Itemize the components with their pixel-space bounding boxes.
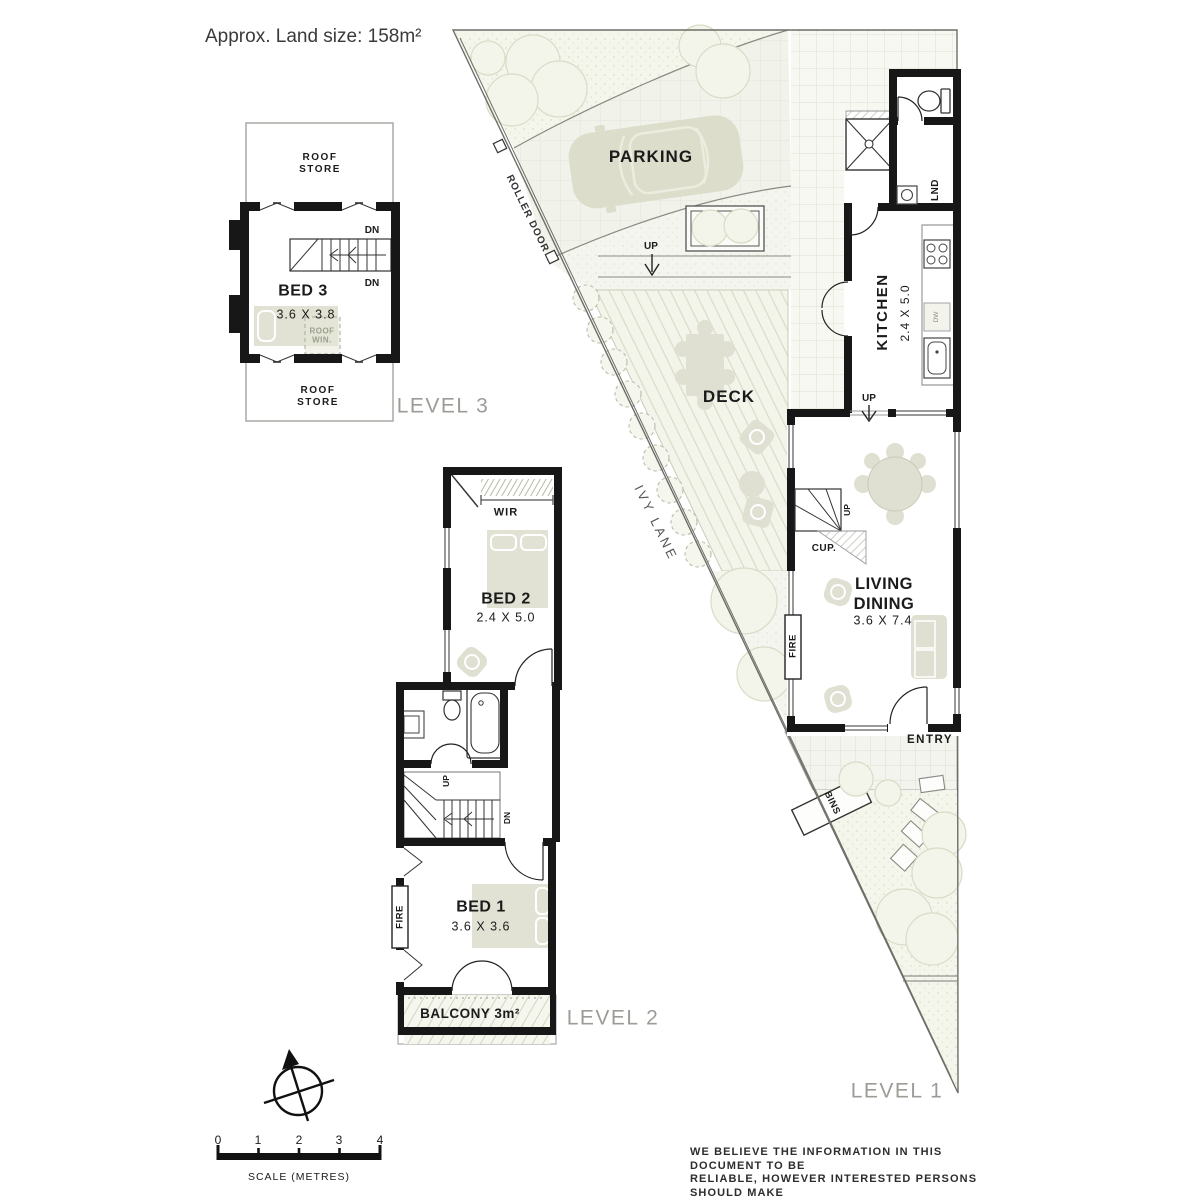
disclaimer-line: WE BELIEVE THE INFORMATION IN THIS DOCUM… — [690, 1146, 990, 1173]
wir-label: WIR — [494, 507, 518, 520]
planter — [686, 206, 764, 251]
bed2-label: BED 2 — [481, 591, 531, 610]
stove-icon — [924, 240, 950, 268]
bed1-dim: 3.6 X 3.6 — [451, 920, 510, 935]
compass-icon — [264, 1049, 334, 1121]
roller-door-post — [493, 139, 506, 152]
fire-label-l1: FIRE — [787, 634, 798, 658]
entry-label: ENTRY — [907, 734, 953, 748]
level3-stairs — [290, 239, 391, 271]
bed2-dim: 2.4 X 5.0 — [476, 611, 535, 626]
up-label-parking: UP — [644, 241, 658, 253]
kitchen-dim: 2.4 X 5.0 — [898, 284, 912, 341]
stair-bulkhead — [846, 111, 893, 170]
dn-lower-label: DN — [365, 278, 379, 290]
scale-tick-2: 2 — [296, 1133, 303, 1147]
bed3-dim: 3.6 X 3.8 — [276, 308, 335, 323]
roof-store-bottom-label: ROOF STORE — [297, 385, 339, 409]
sofa-icon — [911, 615, 947, 679]
bed1-label: BED 1 — [456, 899, 506, 918]
balcony-label: BALCONY 3m² — [420, 1006, 520, 1022]
kitchen-counter — [922, 225, 953, 385]
up-label-stairs: UP — [842, 504, 852, 516]
living-dining-dim: 3.6 X 7.4 — [853, 614, 912, 629]
kitchen-label: KITCHEN — [874, 273, 892, 350]
level2-title: LEVEL 2 — [567, 1007, 660, 1032]
dn-upper-label: DN — [365, 225, 379, 237]
disclaimer-line: RELIABLE, HOWEVER INTERESTED PERSONS SHO… — [690, 1173, 990, 1200]
bath-icon — [467, 688, 503, 758]
level2-plan — [392, 467, 562, 1044]
scale-tick-1: 1 — [255, 1133, 262, 1147]
scale-tick-0: 0 — [215, 1133, 222, 1147]
dishwasher-label: DW — [933, 312, 941, 323]
roof-win-label: ROOF WIN. — [309, 327, 334, 346]
bed3-label: BED 3 — [278, 283, 328, 302]
level3-title: LEVEL 3 — [397, 395, 490, 420]
floorplan-page: Approx. Land size: 158m² ROOF STORE ROOF… — [0, 0, 1200, 1200]
scale-tick-4: 4 — [377, 1133, 384, 1147]
scale-caption: SCALE (METRES) — [248, 1171, 350, 1183]
disclaimer: WE BELIEVE THE INFORMATION IN THIS DOCUM… — [690, 1146, 990, 1200]
land-size-title: Approx. Land size: 158m² — [205, 26, 422, 48]
roof-store-top-label: ROOF STORE — [299, 152, 341, 176]
up-label-l2: UP — [441, 775, 451, 787]
scale-bar — [217, 1145, 382, 1160]
up-label-kitchen: UP — [862, 393, 876, 405]
washing-machine-icon — [897, 186, 917, 204]
toilet-icon — [918, 89, 950, 113]
parking-label: PARKING — [609, 147, 693, 167]
dn-label-l2: DN — [502, 812, 512, 824]
laundry-label: LND — [930, 179, 942, 201]
toilet-icon — [443, 691, 461, 720]
living-dining-label: LIVING DINING — [854, 574, 915, 614]
deck-label: DECK — [703, 387, 755, 407]
scale-tick-3: 3 — [336, 1133, 343, 1147]
fire-label-l2: FIRE — [394, 905, 405, 929]
cupboard-label: CUP. — [812, 543, 837, 555]
level1-title: LEVEL 1 — [851, 1080, 944, 1105]
